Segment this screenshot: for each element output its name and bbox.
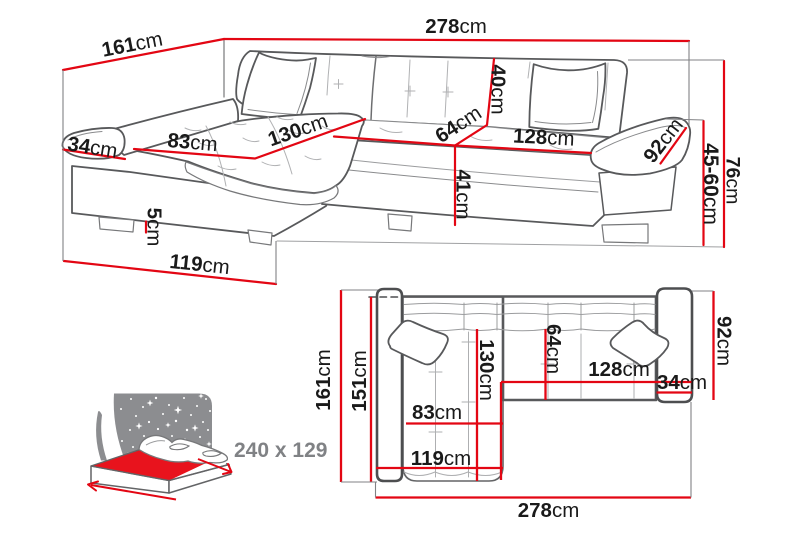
- svg-text:83cm: 83cm: [412, 401, 462, 424]
- svg-text:76cm: 76cm: [722, 157, 744, 205]
- svg-text:64cm: 64cm: [542, 324, 565, 374]
- svg-text:128cm: 128cm: [588, 358, 650, 381]
- svg-text:161cm: 161cm: [312, 349, 335, 411]
- svg-text:40cm: 40cm: [487, 64, 510, 114]
- svg-text:151cm: 151cm: [348, 350, 371, 412]
- svg-text:119cm: 119cm: [168, 250, 230, 279]
- svg-text:128cm: 128cm: [513, 124, 576, 150]
- svg-text:92cm: 92cm: [713, 316, 736, 366]
- svg-text:240 x 129: 240 x 129: [234, 439, 327, 462]
- svg-text:34cm: 34cm: [657, 371, 707, 394]
- svg-text:45-60cm: 45-60cm: [699, 143, 722, 225]
- svg-text:119cm: 119cm: [411, 447, 471, 470]
- svg-text:130cm: 130cm: [475, 339, 498, 401]
- svg-text:5cm: 5cm: [143, 208, 166, 247]
- svg-text:83cm: 83cm: [167, 129, 219, 156]
- svg-text:41cm: 41cm: [452, 169, 475, 219]
- svg-text:278cm: 278cm: [518, 499, 580, 522]
- svg-text:278cm: 278cm: [425, 15, 487, 38]
